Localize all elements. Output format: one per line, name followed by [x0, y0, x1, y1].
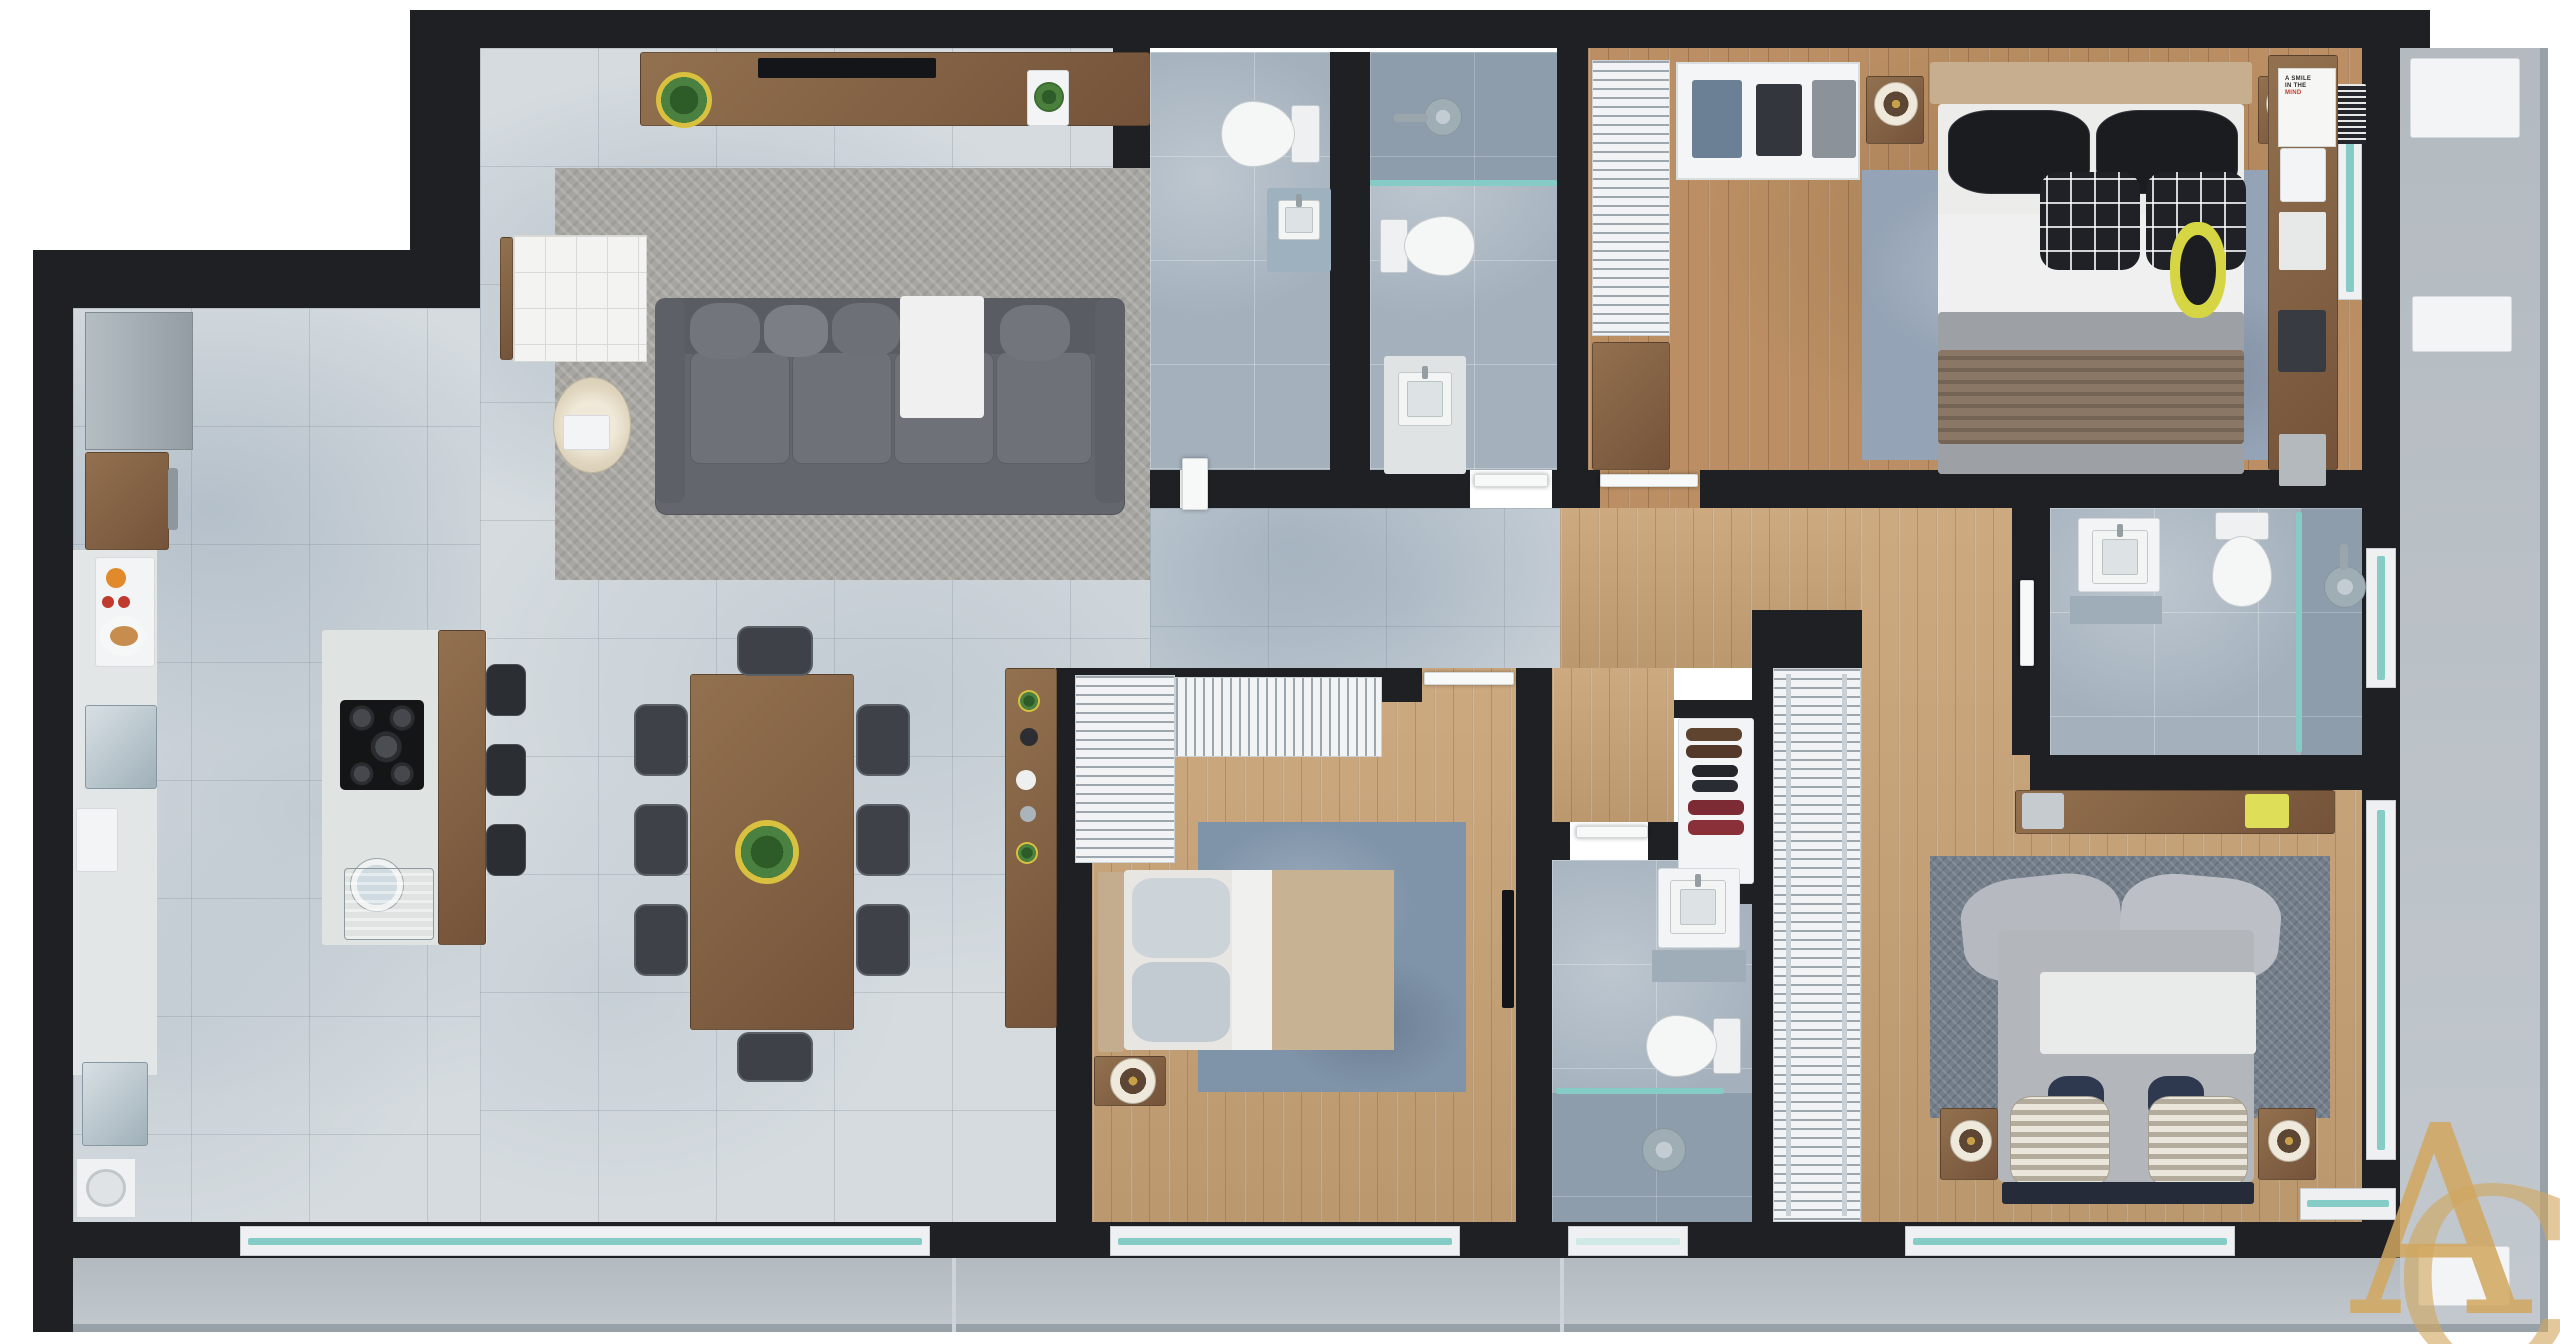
window-bedroom2-glass: [1118, 1238, 1452, 1245]
shoe-pair-black-1: [1692, 765, 1738, 777]
master-desk-notebook: [2245, 794, 2289, 828]
bathroom2-shower-head: [1424, 98, 1462, 136]
balcony-ac-panel-top: [2410, 58, 2520, 138]
sideboard-vase-dark: [1020, 728, 1038, 746]
dining-chair-left-2: [634, 804, 688, 876]
bathroom3-toilet: [1645, 1013, 1741, 1079]
master-lamp-right: [2268, 1120, 2310, 1162]
dining-chair-left-1: [634, 704, 688, 776]
bedroom2-blanket: [1272, 870, 1394, 1050]
dining-plant: [735, 820, 799, 884]
window-ensuite-right-glass: [2377, 556, 2385, 680]
wall-ensuite-bottom: [2030, 755, 2400, 790]
wall-bathroom3-top-a: [1552, 822, 1570, 860]
master-desk-laptop: [2022, 793, 2064, 829]
wall-top: [410, 10, 2430, 48]
shelf-clothes-stack-blue: [1692, 80, 1742, 158]
sideboard-plant-1: [1018, 690, 1040, 712]
bar-stool-1: [486, 664, 526, 716]
shoe-pair-sneaker-2: [1688, 820, 1744, 835]
kitchen-cabinet-handle: [168, 468, 178, 530]
bedroom2-tv: [1502, 890, 1514, 1008]
door-bathroom-1: [1182, 458, 1208, 510]
bathroom1-sink-basin: [1278, 200, 1320, 240]
poster-line-2: IN THE: [2285, 83, 2335, 90]
island-grill: [344, 868, 434, 940]
bar-stool-3: [486, 824, 526, 876]
shoe-pair-sneaker-1: [1688, 800, 1744, 815]
sideboard-plant-2: [1016, 842, 1038, 864]
wall-notch-vertical: [410, 10, 480, 308]
bedroom1-wardrobe: [1592, 60, 1670, 336]
bedroom1-cabinet: [1592, 342, 1670, 470]
wall-shoe-rack-top: [1674, 700, 1758, 718]
dining-chair-right-2: [856, 804, 910, 876]
balcony-divider-post-2: [1560, 1258, 1564, 1332]
pouf-book: [563, 415, 610, 450]
window-master-right-glass: [2377, 810, 2385, 1150]
balcony-right-floor: [2400, 48, 2548, 1332]
tray-croissant: [110, 626, 138, 646]
sofa-cushion-2: [792, 352, 892, 464]
bathroom2-shower-glass: [1370, 180, 1557, 186]
poster-line-3: MIND: [2285, 90, 2335, 97]
bedroom1-headboard: [1930, 62, 2252, 104]
wall-notch-horizontal: [33, 250, 410, 308]
master-pillow-striped-2: [2148, 1096, 2248, 1188]
console-tray-plant: [1034, 82, 1064, 112]
kitchen-washer: [76, 1158, 136, 1218]
door-ensuite: [2020, 580, 2034, 666]
wall-bedroom2-right: [1516, 668, 1552, 1222]
tv-screen: [758, 58, 936, 78]
door-bathroom-2: [1474, 474, 1548, 487]
dining-chair-right-3: [856, 904, 910, 976]
dining-chair-bottom: [737, 1032, 813, 1082]
sideboard-vase-steel: [1020, 806, 1036, 822]
dining-chair-top: [737, 626, 813, 676]
poster-line-1: A SMILE: [2285, 76, 2335, 83]
kitchen-wood-cabinet: [85, 452, 169, 550]
sofa-arm-right: [1095, 298, 1125, 503]
island-wood-bar: [438, 630, 486, 945]
wall-bath-block-bottom-b: [1208, 470, 1470, 508]
shelf-clothes-stack-gray: [1812, 80, 1856, 158]
bedroom2-closet-horizontal: [1175, 677, 1382, 757]
kitchen-dishwasher: [76, 808, 118, 872]
shoe-pair-black-2: [1692, 780, 1738, 792]
hall-tile-floor: [1150, 508, 1560, 668]
ensuite-toilet: [2210, 512, 2274, 608]
wall-bath2-bedroom1: [1557, 48, 1588, 508]
window-bathroom3-glass: [1576, 1238, 1680, 1245]
bedroom2-headboard: [1098, 872, 1124, 1052]
sofa-cushion-1: [690, 352, 790, 464]
master-footboard: [2002, 1182, 2254, 1204]
sofa-pillow-2: [764, 305, 828, 357]
shoe-pair-brown-1: [1686, 728, 1742, 741]
bedroom2-pillow-2: [1132, 962, 1230, 1042]
tray-apple-1: [102, 596, 114, 608]
balcony-right-edge: [2540, 48, 2548, 1332]
bedroom2-sheet-fold: [1232, 870, 1272, 1050]
wardrobe-rail-2: [1842, 674, 1847, 1216]
shelf-clothes-stack-dark: [1756, 84, 1802, 156]
desk-laptop-dark: [2278, 310, 2326, 372]
wardrobe-rail-1: [1786, 674, 1791, 1216]
bathroom2-toilet: [1380, 214, 1476, 278]
master-duvet-fold: [2040, 972, 2256, 1054]
desk-accessory-tray: [2280, 148, 2326, 202]
wall-left: [33, 250, 73, 1332]
dining-chair-left-3: [634, 904, 688, 976]
ensuite-sink: [2092, 530, 2148, 584]
tray-apple-2: [118, 596, 130, 608]
tray-orange-juice: [106, 568, 126, 588]
balcony-bottom-edge: [73, 1324, 2548, 1332]
window-master-balcony-glass: [1913, 1238, 2227, 1245]
console-plant-yellow-pot: [656, 72, 712, 128]
sofa-pillow-3: [832, 303, 900, 357]
master-pillow-striped-1: [2010, 1096, 2110, 1188]
wall-wardrobe-top: [1752, 610, 1862, 668]
wall-bedroom1-bottom-b: [1700, 470, 2362, 508]
wall-bath1-bath2-divider: [1330, 52, 1370, 470]
wall-bathroom3-right: [1752, 668, 1773, 1222]
armchair-wood-slats: [500, 237, 513, 360]
ensuite-shower-arm: [2340, 544, 2348, 570]
sideboard-bowl-white: [1016, 770, 1036, 790]
bedroom1-pillow-plaid-1: [2040, 172, 2140, 270]
ensuite-counter: [2070, 596, 2162, 624]
kitchen-sink-top: [85, 705, 157, 789]
bedroom1-lamp-left: [1874, 82, 1918, 126]
bathroom2-sink: [1398, 372, 1452, 426]
sofa-white-throw: [900, 296, 984, 418]
balcony-divider-post-1: [952, 1258, 956, 1332]
bedroom1-throw: [1938, 350, 2244, 444]
sofa-pillow-4: [1000, 305, 1070, 361]
door-bathroom-3: [1576, 826, 1648, 838]
desk-magazine: [2279, 212, 2326, 270]
bathroom3-shower-head: [1642, 1128, 1686, 1172]
dining-chair-right-1: [856, 704, 910, 776]
sofa-arm-left: [655, 298, 685, 503]
wall-bedroom1-bottom-a: [1588, 470, 1600, 508]
shoe-pair-brown-2: [1686, 745, 1742, 758]
sofa-cushion-4: [996, 352, 1092, 464]
apartment-floor-plan: A SMILE IN THE MIND A C: [0, 0, 2560, 1344]
desk-photo-frame: [2279, 434, 2326, 486]
window-master-corner-glass: [2307, 1200, 2389, 1207]
sofa-pillow-1: [690, 303, 760, 359]
door-bedroom-2: [1424, 672, 1514, 685]
bedroom2-closet-vertical: [1075, 675, 1175, 863]
master-lamp-left: [1950, 1120, 1992, 1162]
bathroom1-toilet: [1220, 99, 1320, 169]
bedroom2-pillow-1: [1132, 878, 1230, 958]
bathroom2-shower-arm: [1394, 114, 1428, 122]
ensuite-shower-head: [2324, 566, 2366, 608]
balcony-ac-panel-bottom: [2418, 1246, 2510, 1306]
bedroom1-poster: A SMILE IN THE MIND: [2278, 68, 2336, 147]
ensuite-shower-glass: [2296, 512, 2302, 752]
bathroom3-counter: [1652, 950, 1746, 982]
island-cooktop: [340, 700, 424, 790]
door-bedroom-1: [1600, 474, 1698, 487]
bedroom2-lamp: [1110, 1058, 1156, 1104]
kitchen-fridge: [85, 312, 193, 450]
corridor-wood-floor-2: [1552, 668, 1674, 822]
wall-bath-block-bottom-a: [1150, 470, 1180, 508]
balcony-bottom-floor: [73, 1258, 2548, 1332]
bathroom3-shower-glass: [1556, 1088, 1724, 1094]
bedroom1-yellow-chair: [2170, 222, 2226, 318]
bathroom3-sink: [1670, 880, 1726, 934]
balcony-ac-panel-mid: [2412, 296, 2512, 352]
window-living-balcony-glass: [248, 1238, 922, 1245]
tufted-armchair: [513, 235, 647, 362]
kitchen-sink-bottom: [82, 1062, 148, 1146]
bar-stool-2: [486, 744, 526, 796]
